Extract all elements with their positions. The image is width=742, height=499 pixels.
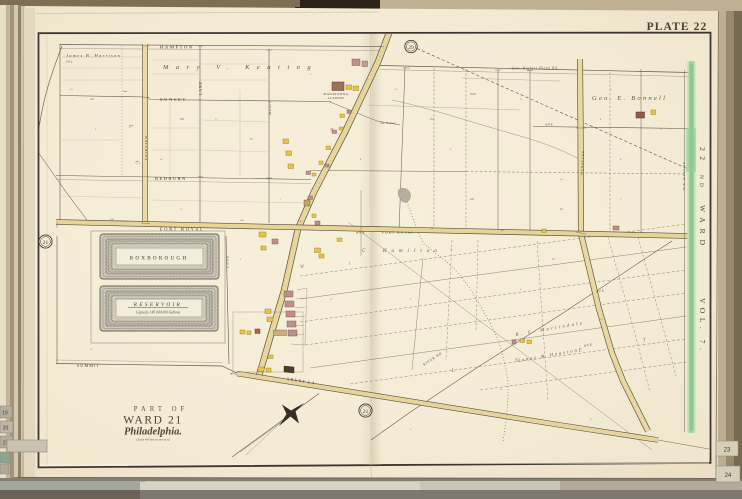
svg-text:FORT ROYAL: FORT ROYAL — [160, 227, 205, 232]
svg-text:HAMPTON: HAMPTON — [160, 45, 194, 50]
svg-text:Philadelphia.: Philadelphia. — [124, 427, 182, 438]
svg-text:James B. Harrison: James B. Harrison — [66, 53, 121, 58]
svg-text:LANE: LANE — [199, 81, 203, 95]
svg-text:21: 21 — [43, 240, 49, 246]
svg-text:ROXBOROUGH: ROXBOROUGH — [130, 256, 189, 262]
svg-text:ACADEMY: ACADEMY — [328, 97, 345, 100]
svg-text:(Scale 400 feet to one inch): (Scale 400 feet to one inch) — [137, 438, 170, 442]
svg-text:20: 20 — [3, 426, 9, 432]
svg-text:ND: ND — [698, 175, 704, 191]
svg-text:REDBURN: REDBURN — [155, 176, 187, 181]
svg-text:19: 19 — [2, 411, 8, 417]
svg-text:SUMMIT: SUMMIT — [77, 363, 100, 368]
svg-text:Mary V. Keating: Mary V. Keating — [162, 64, 318, 71]
svg-text:AVE: AVE — [356, 231, 366, 235]
svg-text:FORT ROYAL: FORT ROYAL — [382, 231, 415, 235]
svg-text:AVE: AVE — [545, 123, 554, 127]
svg-text:21: 21 — [363, 409, 369, 415]
svg-text:Capacity 145 000 000 Gallons: Capacity 145 000 000 Gallons — [136, 311, 181, 315]
svg-text:RESERVOIR: RESERVOIR — [133, 302, 182, 308]
svg-text:Geo. E. Bonnell: Geo. E. Bonnell — [592, 95, 667, 102]
svg-text:WARD: WARD — [698, 205, 707, 251]
svg-text:Jas. Dobson: Jas. Dobson — [380, 121, 396, 125]
svg-text:29: 29 — [408, 45, 414, 51]
svg-text:100 a: 100 a — [66, 61, 73, 64]
svg-text:WARD 21: WARD 21 — [123, 415, 182, 427]
svg-text:24: 24 — [725, 473, 732, 479]
svg-text:26.50: 26.50 — [470, 93, 477, 96]
svg-text:23: 23 — [724, 448, 731, 454]
svg-text:PART OF: PART OF — [134, 406, 189, 413]
svg-text:FAIRVIEW: FAIRVIEW — [144, 134, 148, 160]
svg-text:22: 22 — [698, 147, 707, 166]
svg-text:SUNSET: SUNSET — [160, 97, 187, 102]
svg-text:W.B. RIDGE RD: W.B. RIDGE RD — [682, 161, 686, 190]
svg-text:Geo. Righter Plank Rd.: Geo. Righter Plank Rd. — [512, 67, 559, 71]
svg-text:AVE.: AVE. — [230, 372, 238, 376]
svg-text:MAPLE: MAPLE — [268, 100, 272, 115]
svg-text:PLATE 22: PLATE 22 — [647, 21, 708, 33]
svg-text:C. Hamilton: C. Hamilton — [362, 249, 442, 254]
svg-text:LANE: LANE — [226, 255, 230, 268]
svg-text:MANATAWNA: MANATAWNA — [323, 92, 348, 96]
svg-text:VOL. 7.: VOL. 7. — [698, 298, 707, 354]
